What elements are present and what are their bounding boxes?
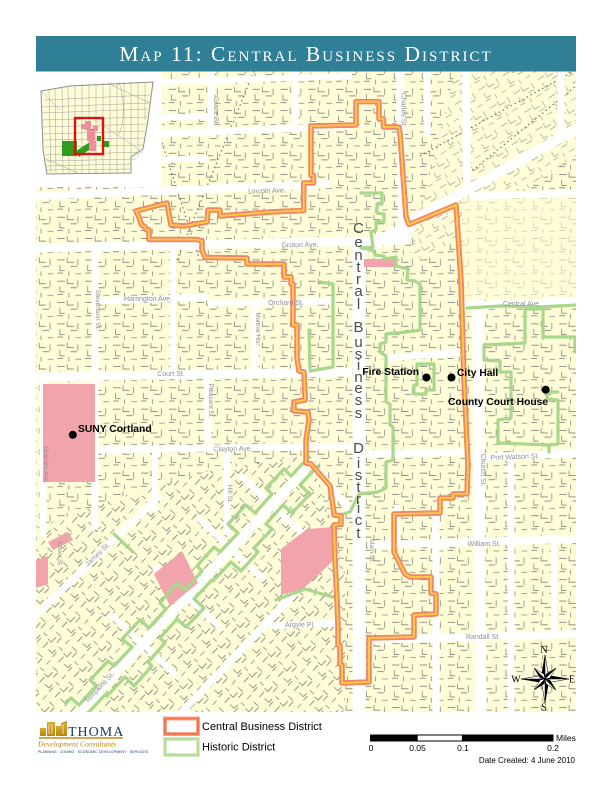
svg-text:William St.: William St. bbox=[467, 541, 500, 548]
svg-text:Randall St.: Randall St. bbox=[466, 634, 500, 641]
svg-text:PLANNING · ZONING · ECONOMIC D: PLANNING · ZONING · ECONOMIC DEVELOPMENT… bbox=[38, 750, 149, 754]
svg-text:Cover St.: Cover St. bbox=[56, 541, 62, 566]
svg-text:0.2: 0.2 bbox=[547, 743, 559, 753]
svg-text:Date Created: 4 June 2010: Date Created: 4 June 2010 bbox=[479, 756, 576, 765]
svg-text:Argyle Pl.: Argyle Pl. bbox=[285, 622, 315, 629]
svg-text:County Court House: County Court House bbox=[448, 397, 548, 408]
svg-text:s: s bbox=[355, 405, 363, 422]
svg-text:Historic District: Historic District bbox=[202, 742, 275, 754]
svg-text:Central Business District: Central Business District bbox=[202, 721, 322, 733]
svg-text:E: E bbox=[569, 675, 575, 686]
svg-text:Hill St.: Hill St. bbox=[226, 485, 233, 504]
svg-text:S: S bbox=[541, 703, 547, 714]
svg-text:N: N bbox=[540, 645, 547, 656]
svg-text:City Hall: City Hall bbox=[457, 368, 498, 379]
svg-text:Central Ave.: Central Ave. bbox=[503, 301, 541, 308]
svg-text:Miles: Miles bbox=[556, 733, 576, 743]
svg-text:Grace St.: Grace St. bbox=[212, 96, 219, 126]
svg-text:0.05: 0.05 bbox=[409, 743, 426, 753]
svg-text:0.1: 0.1 bbox=[457, 743, 469, 753]
svg-text:0: 0 bbox=[369, 743, 374, 753]
svg-text:Clayton Ave.: Clayton Ave. bbox=[213, 446, 252, 454]
svg-text:Groton Ave.: Groton Ave. bbox=[282, 242, 319, 250]
svg-text:Orchard St.: Orchard St. bbox=[268, 300, 304, 307]
svg-text:Pleasant St.: Pleasant St. bbox=[207, 383, 214, 418]
svg-text:Harrington Ave.: Harrington Ave. bbox=[124, 296, 172, 303]
svg-text:Main St.: Main St. bbox=[368, 539, 375, 563]
svg-text:Court St.: Court St. bbox=[157, 371, 185, 378]
svg-text:Map 11: Central Business Distr: Map 11: Central Business District bbox=[119, 42, 492, 66]
svg-text:Development Consultants: Development Consultants bbox=[37, 740, 116, 749]
svg-text:l: l bbox=[357, 296, 360, 313]
svg-text:Church St.: Church St. bbox=[479, 453, 486, 486]
svg-text:Stevenson St.: Stevenson St. bbox=[94, 290, 101, 331]
svg-text:SUNY Cortland: SUNY Cortland bbox=[78, 424, 152, 435]
svg-text:W: W bbox=[511, 675, 521, 686]
svg-text:Monroe Hts.: Monroe Hts. bbox=[254, 313, 260, 346]
svg-text:Fire Station: Fire Station bbox=[362, 367, 419, 378]
svg-text:Lincoln Ave.: Lincoln Ave. bbox=[248, 187, 286, 195]
svg-text:Graham Ave.: Graham Ave. bbox=[42, 446, 49, 484]
svg-text:Charles St.: Charles St. bbox=[400, 93, 407, 128]
